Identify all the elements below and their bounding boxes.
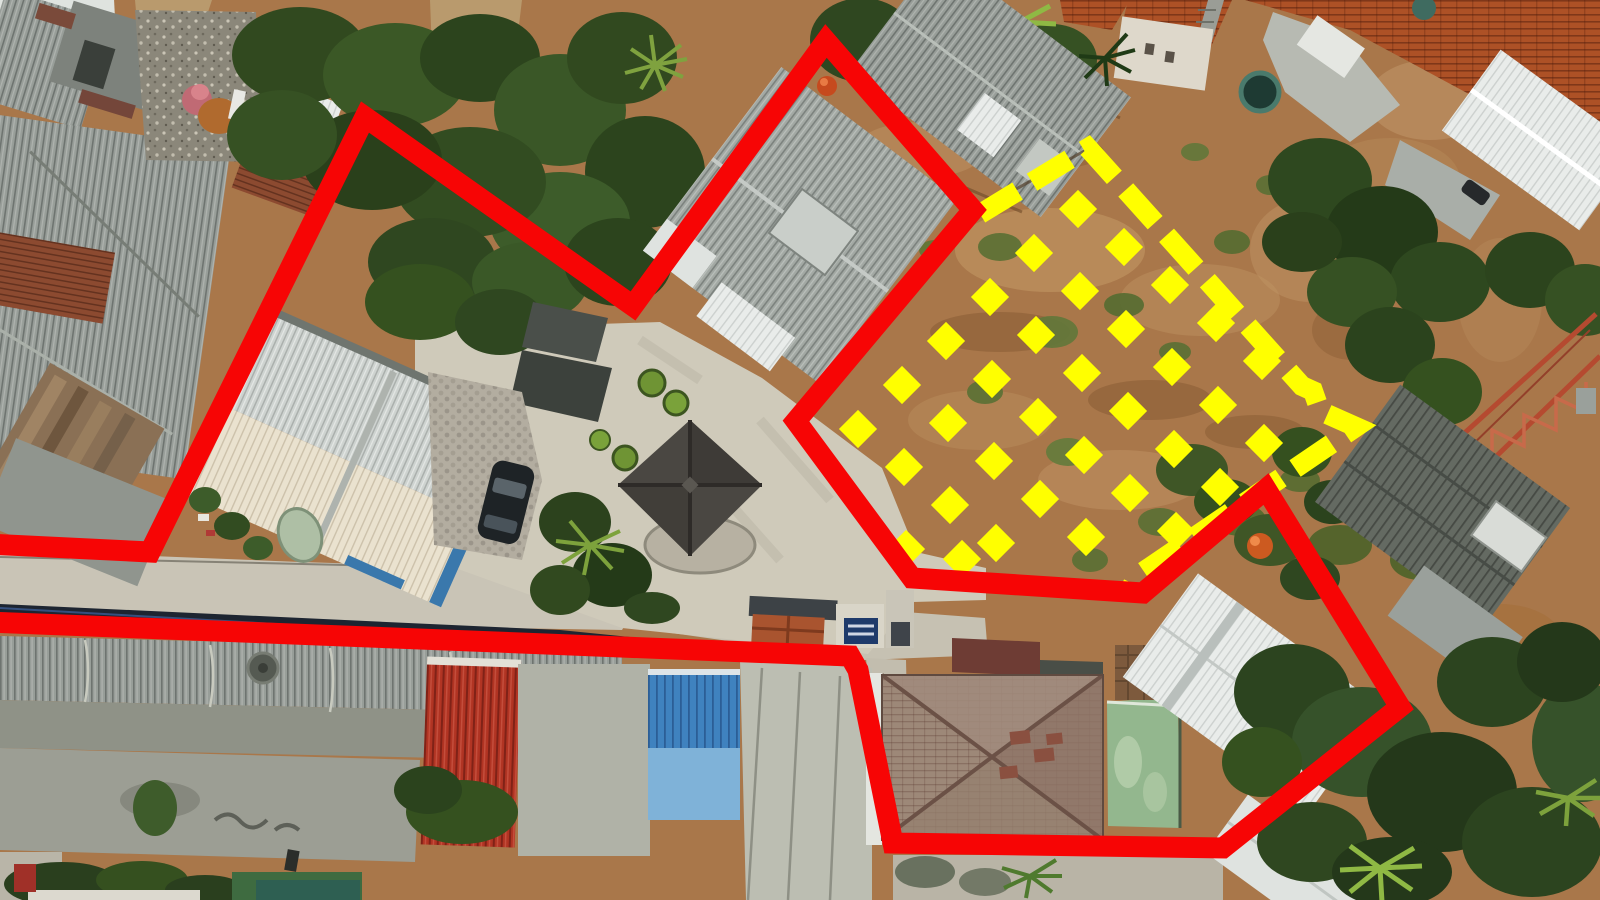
green-court	[1107, 698, 1180, 828]
aerial-photo	[0, 0, 1600, 900]
round-well	[1241, 73, 1279, 111]
red-sign	[14, 864, 36, 892]
orange-dome-tank	[1247, 533, 1273, 559]
blue-corrugated-roof	[648, 669, 740, 820]
orange-water-tank	[817, 76, 837, 96]
scene	[0, 0, 1600, 900]
